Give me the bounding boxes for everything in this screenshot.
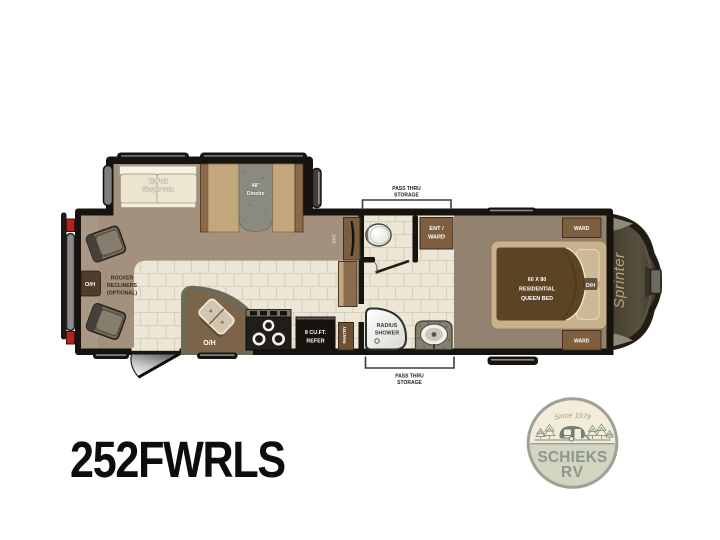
svg-text:PASS THRU: PASS THRU bbox=[392, 186, 421, 192]
svg-text:O/H: O/H bbox=[85, 282, 95, 288]
svg-text:ENT.: ENT. bbox=[332, 234, 337, 244]
svg-text:PANTRY: PANTRY bbox=[342, 326, 347, 343]
svg-text:8 CU.FT.: 8 CU.FT. bbox=[305, 330, 327, 336]
svg-text:WARD: WARD bbox=[574, 226, 590, 232]
svg-text:SHOWER: SHOWER bbox=[375, 331, 399, 337]
svg-text:REFER: REFER bbox=[306, 339, 324, 345]
svg-text:STORAGE: STORAGE bbox=[397, 380, 422, 386]
svg-text:O/H: O/H bbox=[586, 283, 596, 289]
svg-text:(OPTIONAL): (OPTIONAL) bbox=[107, 291, 138, 297]
svg-text:WARD: WARD bbox=[574, 339, 590, 345]
svg-text:60 X 80: 60 X 80 bbox=[528, 277, 547, 283]
svg-text:Tri-Fold: Tri-Fold bbox=[148, 179, 167, 185]
svg-text:RV: RV bbox=[561, 464, 584, 481]
svg-text:Sleeper Sofa: Sleeper Sofa bbox=[142, 187, 174, 193]
svg-text:ROCKER: ROCKER bbox=[111, 276, 134, 282]
svg-text:STORAGE: STORAGE bbox=[394, 193, 419, 199]
svg-text:Sprinter: Sprinter bbox=[611, 252, 628, 308]
svg-text:RESIDENTIAL: RESIDENTIAL bbox=[519, 287, 556, 293]
svg-text:WARD: WARD bbox=[428, 235, 445, 241]
svg-text:Dinette: Dinette bbox=[247, 191, 265, 197]
svg-text:252FWRLS: 252FWRLS bbox=[70, 432, 285, 489]
svg-text:PASS THRU: PASS THRU bbox=[395, 374, 424, 380]
svg-text:QUEEN BED: QUEEN BED bbox=[521, 296, 553, 302]
svg-text:48": 48" bbox=[252, 183, 261, 189]
svg-text:RECLINERS: RECLINERS bbox=[107, 283, 138, 289]
svg-text:ENT /: ENT / bbox=[429, 226, 444, 232]
svg-text:RADIUS: RADIUS bbox=[377, 323, 398, 329]
svg-text:O/H: O/H bbox=[203, 340, 215, 347]
